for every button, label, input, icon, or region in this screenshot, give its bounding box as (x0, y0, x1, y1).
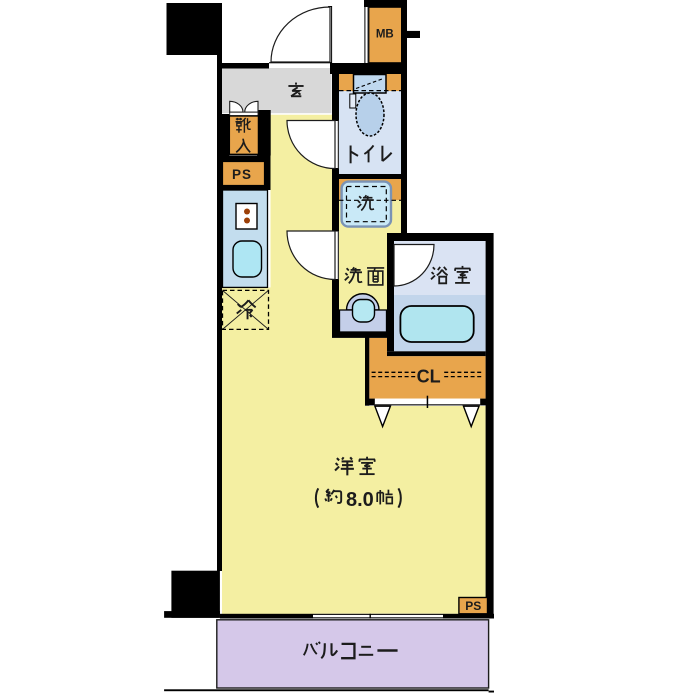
svg-text:PS: PS (232, 167, 252, 182)
svg-text:MB: MB (376, 29, 394, 41)
svg-text:CL: CL (417, 366, 441, 386)
svg-text:8.0: 8.0 (346, 489, 374, 511)
svg-text:PS: PS (465, 599, 481, 613)
